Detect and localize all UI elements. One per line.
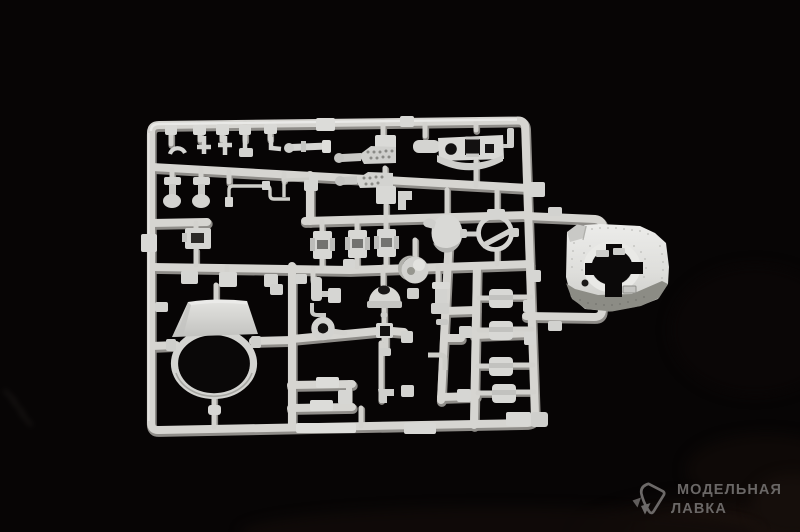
- svg-text:ЛАВКА: ЛАВКА: [671, 501, 727, 517]
- svg-text:МОДЕЛЬНАЯ: МОДЕЛЬНАЯ: [677, 482, 782, 498]
